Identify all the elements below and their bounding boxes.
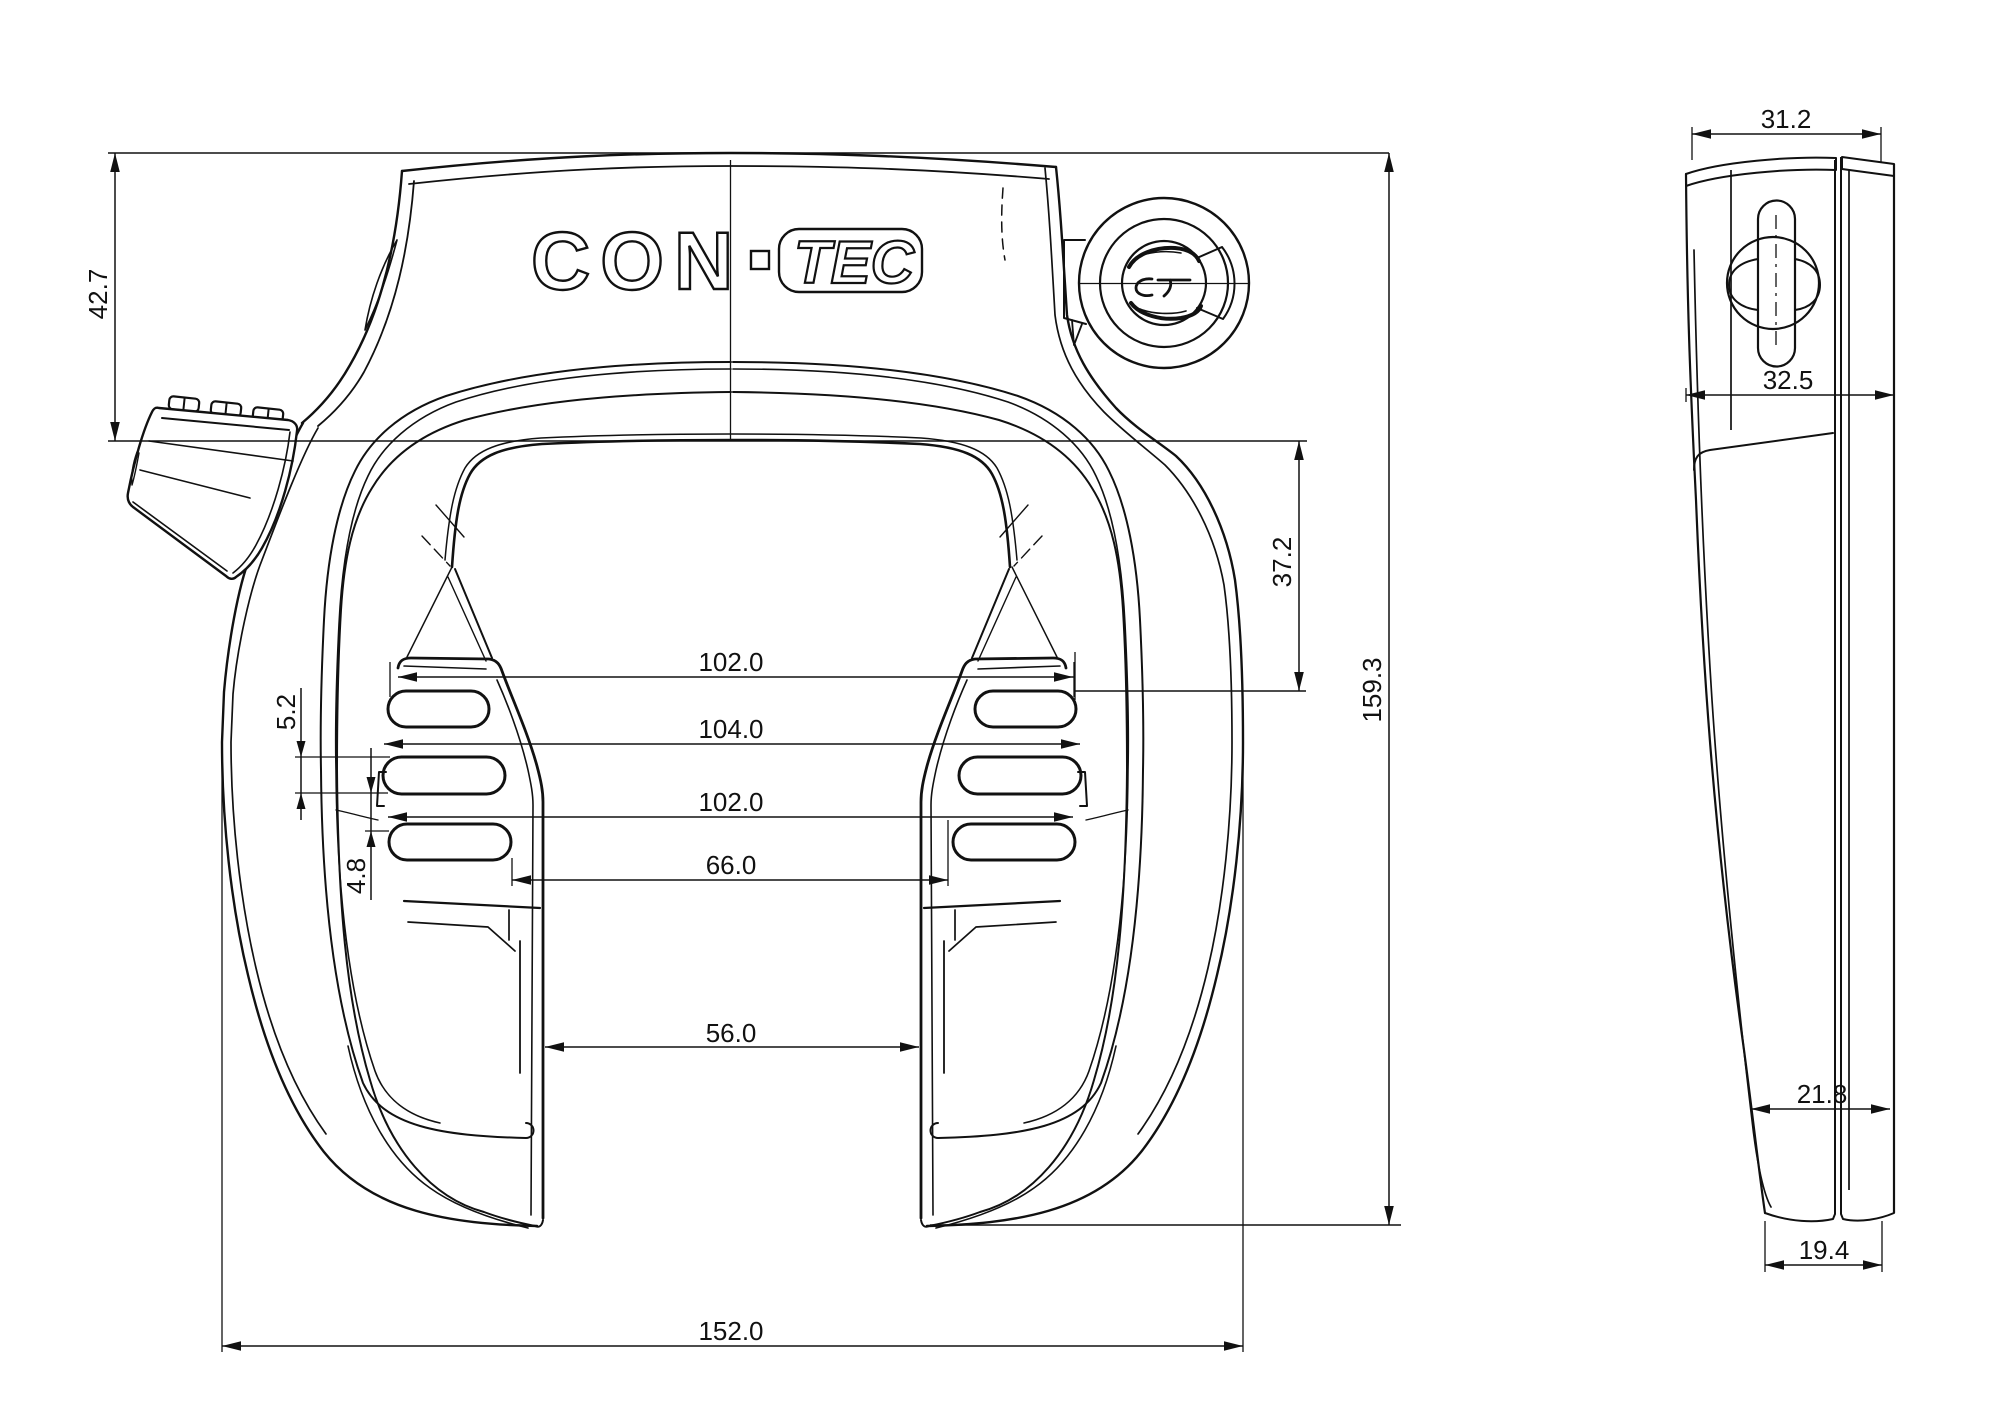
svg-text:104.0: 104.0 [698,714,763,744]
svg-text:102.0: 102.0 [698,787,763,817]
svg-text:56.0: 56.0 [706,1018,757,1048]
svg-text:37.2: 37.2 [1267,537,1297,588]
svg-text:5.2: 5.2 [271,694,301,730]
svg-text:66.0: 66.0 [706,850,757,880]
svg-text:42.7: 42.7 [83,269,113,320]
svg-text:159.3: 159.3 [1357,657,1387,722]
svg-text:152.0: 152.0 [698,1316,763,1346]
svg-text:4.8: 4.8 [341,858,371,894]
svg-text:102.0: 102.0 [698,647,763,677]
svg-text:TEC: TEC [794,229,916,296]
svg-text:32.5: 32.5 [1763,365,1814,395]
svg-text:21.8: 21.8 [1797,1079,1848,1109]
svg-text:31.2: 31.2 [1761,104,1812,134]
svg-text:CON: CON [531,216,743,307]
svg-text:19.4: 19.4 [1799,1235,1850,1265]
